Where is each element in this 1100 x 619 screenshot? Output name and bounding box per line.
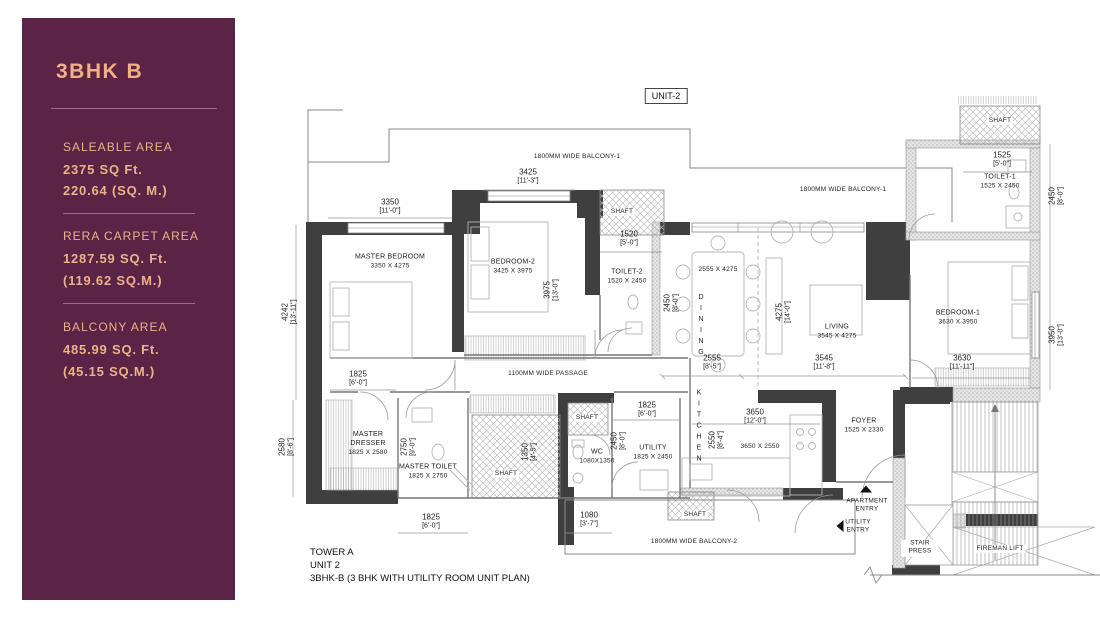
floorplan-drawing (0, 0, 1100, 619)
utility-entry-arrow-icon (837, 520, 844, 532)
apartment-entry-arrow-icon (860, 486, 872, 493)
footer-plan-name: 3BHK-B (3 BHK WITH UTILITY ROOM UNIT PLA… (310, 572, 530, 585)
floorplan-page: { "sidebar": { "title": "3BHK B", "secti… (0, 0, 1100, 619)
footer-tower: TOWER A (310, 546, 530, 559)
unit-badge: UNIT-2 (645, 88, 688, 104)
footer-unit: UNIT 2 (310, 559, 530, 572)
plan-footer: TOWER A UNIT 2 3BHK-B (3 BHK WITH UTILIT… (310, 546, 530, 585)
